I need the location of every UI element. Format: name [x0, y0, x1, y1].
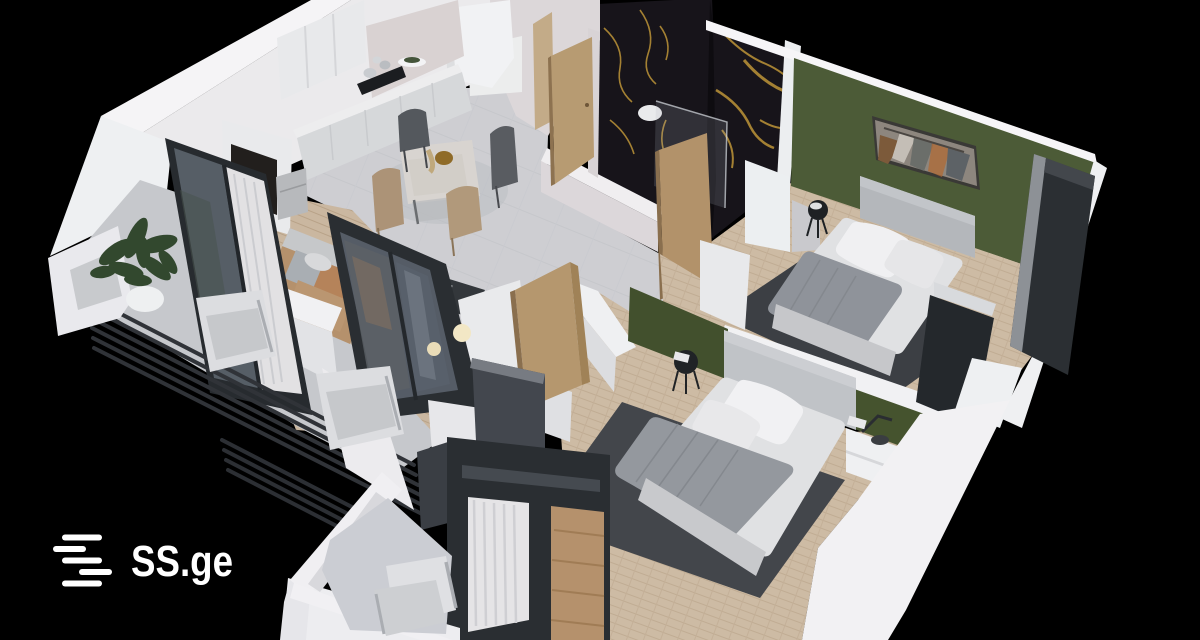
svg-text:SS.ge: SS.ge — [131, 537, 233, 586]
